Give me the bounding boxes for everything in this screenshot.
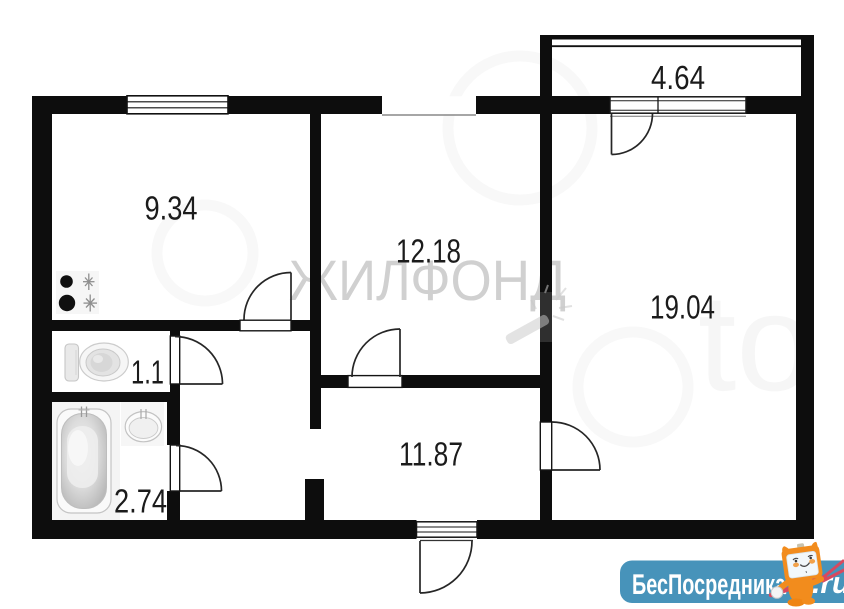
svg-text:БесПосредника: БесПосредника [632,569,787,601]
svg-text:19.04: 19.04 [650,290,715,327]
svg-text:to: to [698,266,813,420]
svg-text:4.64: 4.64 [651,60,705,97]
svg-text:1.1: 1.1 [131,355,164,392]
svg-text:11.87: 11.87 [399,437,463,474]
svg-text:12.18: 12.18 [396,234,461,271]
svg-text:2.74: 2.74 [114,484,167,521]
svg-text:9.34: 9.34 [145,191,198,228]
